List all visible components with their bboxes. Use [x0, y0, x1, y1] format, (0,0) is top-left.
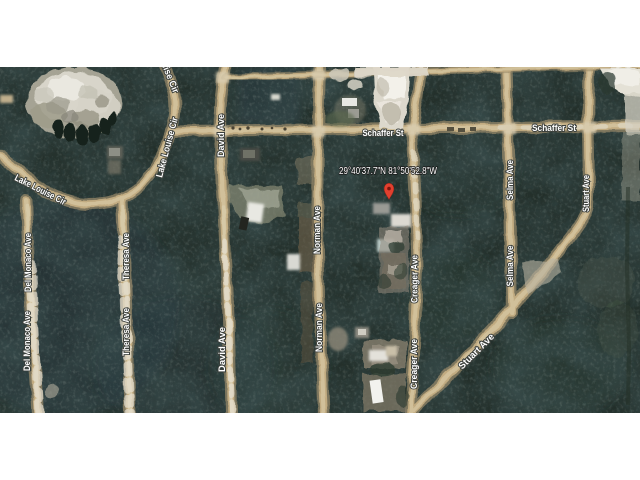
svg-text:Creager Ave: Creager Ave: [410, 255, 421, 303]
svg-text:Theresa Ave: Theresa Ave: [121, 233, 132, 280]
svg-text:Stuart Ave: Stuart Ave: [581, 175, 592, 212]
svg-text:Del Monaco Ave: Del Monaco Ave: [22, 311, 33, 371]
svg-text:David Ave: David Ave: [216, 114, 227, 157]
svg-text:Selma Ave: Selma Ave: [505, 160, 516, 200]
svg-text:Norman Ave: Norman Ave: [312, 206, 323, 254]
svg-text:Norman Ave: Norman Ave: [314, 303, 325, 352]
svg-text:Creager Ave: Creager Ave: [409, 339, 420, 389]
svg-text:29°40'37.7"N 81°50'52.8"W: 29°40'37.7"N 81°50'52.8"W: [339, 166, 437, 177]
svg-text:Theresa Ave: Theresa Ave: [121, 308, 132, 356]
svg-text:Selma Ave: Selma Ave: [505, 246, 516, 287]
svg-text:David Ave: David Ave: [217, 327, 228, 372]
svg-text:Schaffer St: Schaffer St: [532, 123, 577, 134]
svg-text:Schaffer St: Schaffer St: [363, 128, 405, 139]
svg-text:Del Monaco Ave: Del Monaco Ave: [23, 233, 34, 292]
